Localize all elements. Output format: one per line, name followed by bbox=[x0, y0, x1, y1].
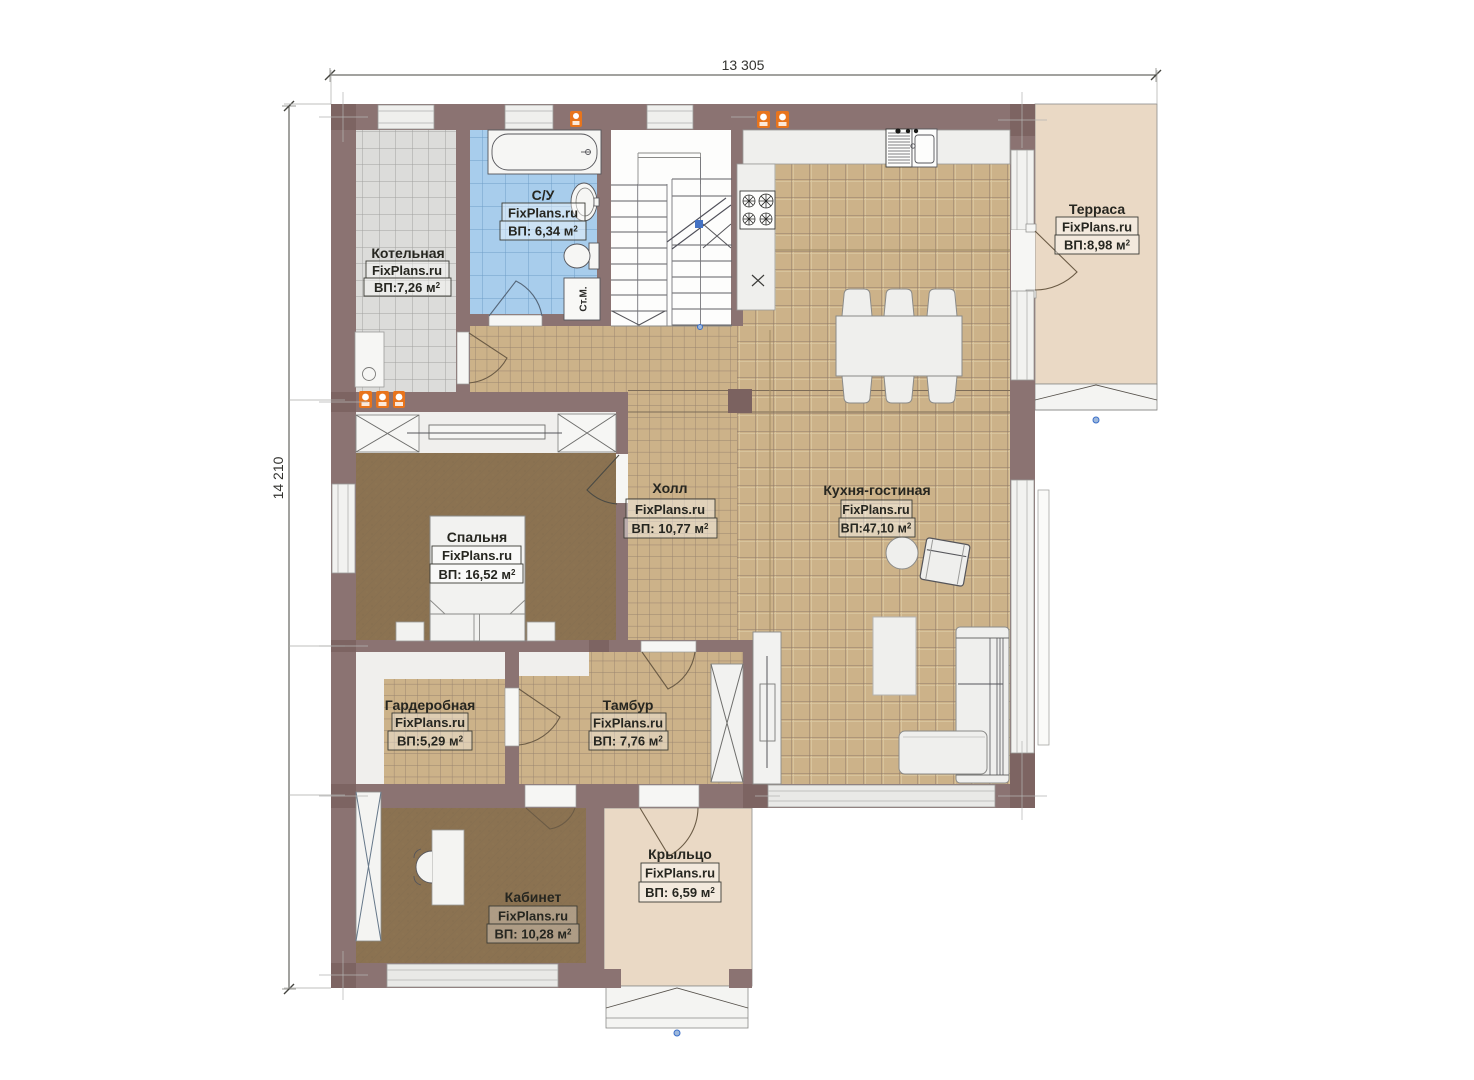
svg-text:ВП: 10,28 м2: ВП: 10,28 м2 bbox=[495, 927, 572, 942]
svg-text:ВП:47,10 м2: ВП:47,10 м2 bbox=[841, 522, 912, 536]
svg-text:Крыльцо: Крыльцо bbox=[648, 846, 712, 862]
svg-text:Спальня: Спальня bbox=[447, 529, 507, 545]
svg-text:FixPlans.ru: FixPlans.ru bbox=[372, 263, 442, 278]
svg-text:С/У: С/У bbox=[532, 187, 555, 203]
svg-text:ВП: 16,52 м2: ВП: 16,52 м2 bbox=[439, 567, 516, 582]
svg-text:Тамбур: Тамбур bbox=[603, 697, 654, 713]
svg-text:Гардеробная: Гардеробная bbox=[385, 697, 476, 713]
svg-text:FixPlans.ru: FixPlans.ru bbox=[645, 866, 715, 881]
svg-text:FixPlans.ru: FixPlans.ru bbox=[1062, 220, 1132, 235]
svg-text:ВП:5,29 м2: ВП:5,29 м2 bbox=[397, 734, 464, 749]
svg-text:Холл: Холл bbox=[652, 480, 687, 496]
svg-text:FixPlans.ru: FixPlans.ru bbox=[593, 716, 663, 731]
svg-text:Кабинет: Кабинет bbox=[505, 889, 562, 905]
svg-text:Ст.М.: Ст.М. bbox=[579, 286, 590, 311]
svg-text:FixPlans.ru: FixPlans.ru bbox=[498, 909, 568, 924]
svg-text:Кухня-гостиная: Кухня-гостиная bbox=[823, 482, 930, 498]
svg-text:ВП: 7,76 м2: ВП: 7,76 м2 bbox=[593, 734, 663, 749]
svg-text:14 210: 14 210 bbox=[270, 456, 286, 499]
svg-text:ВП:8,98 м2: ВП:8,98 м2 bbox=[1064, 238, 1131, 253]
svg-text:ВП: 10,77 м2: ВП: 10,77 м2 bbox=[632, 521, 709, 536]
svg-text:Терраса: Терраса bbox=[1069, 201, 1125, 217]
svg-text:FixPlans.ru: FixPlans.ru bbox=[508, 206, 578, 221]
svg-text:FixPlans.ru: FixPlans.ru bbox=[442, 548, 512, 563]
svg-text:FixPlans.ru: FixPlans.ru bbox=[635, 502, 705, 517]
svg-text:ВП:7,26 м2: ВП:7,26 м2 bbox=[374, 280, 441, 295]
svg-text:ВП: 6,34 м2: ВП: 6,34 м2 bbox=[508, 224, 578, 239]
svg-text:FixPlans.ru: FixPlans.ru bbox=[842, 503, 909, 517]
svg-text:Котельная: Котельная bbox=[371, 245, 444, 261]
svg-text:FixPlans.ru: FixPlans.ru bbox=[395, 715, 465, 730]
svg-text:ВП: 6,59 м2: ВП: 6,59 м2 bbox=[645, 885, 715, 900]
svg-text:13 305: 13 305 bbox=[722, 57, 765, 73]
